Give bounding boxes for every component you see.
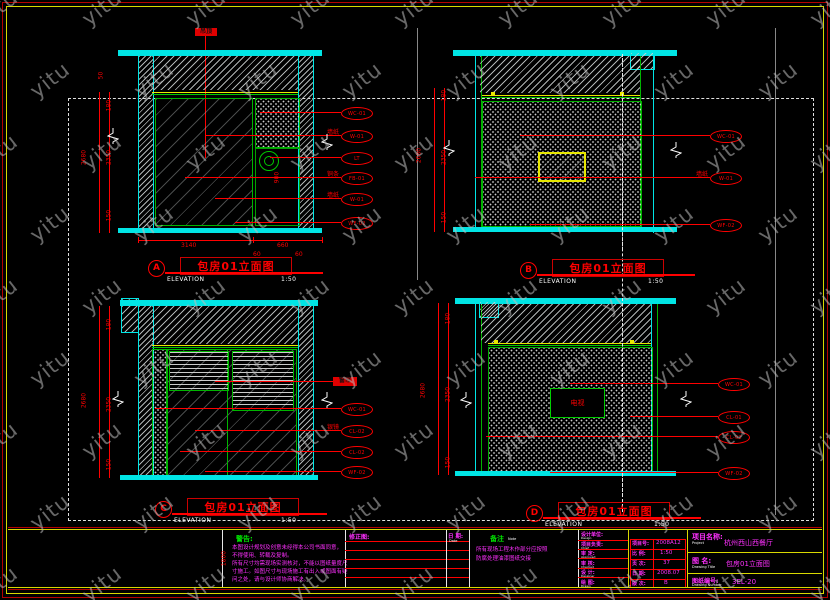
title-underline — [543, 517, 701, 519]
field-value: 1:50 — [660, 550, 672, 556]
callout-leader — [630, 416, 718, 417]
floor-line — [118, 228, 322, 233]
title-underline — [165, 272, 323, 274]
callout-label: 墙纸 — [295, 190, 339, 199]
dim-line — [138, 240, 322, 241]
dim-text: 150 — [106, 201, 113, 231]
callout-bubble: WC-01 — [341, 107, 373, 120]
elevation-panel-b: 180 2350 150 2680 WC-01 墙纸 W-01 WF-02 B … — [420, 28, 755, 283]
callout-bubble: WF-02 — [341, 217, 373, 230]
revision-header: 修正图: — [349, 532, 369, 541]
elevation-label: ELEVATION — [174, 517, 211, 524]
dim-text: 150 — [445, 448, 452, 478]
trim-line — [152, 345, 298, 346]
break-mark-icon — [670, 142, 682, 158]
date-subheader: Date — [449, 539, 457, 543]
view-letter: D — [526, 505, 543, 522]
grid-line — [775, 28, 776, 515]
scale-label: 1:50 — [648, 278, 663, 285]
signature-row-line — [578, 577, 628, 578]
callout-leader — [520, 135, 710, 136]
field-value: 2008.07 — [657, 570, 680, 576]
break-mark-icon — [680, 391, 692, 407]
callout-label: 墙纸 — [664, 169, 708, 178]
ceiling-tag: 吊顶 — [195, 28, 217, 36]
trim-bracket — [630, 340, 634, 344]
view-letter: C — [155, 501, 172, 518]
callout-bubble: LT — [341, 152, 373, 165]
callout-leader — [235, 222, 341, 223]
centerline-dashed — [622, 298, 623, 496]
wall-edge — [653, 50, 654, 233]
dim-tick — [138, 237, 139, 243]
drawing-title-sublabel: Drawing Title — [692, 565, 715, 569]
floor-line — [120, 475, 318, 480]
callout-bubble: CL-02 — [341, 425, 373, 438]
curtain-tag: 窗帘 — [333, 377, 357, 386]
callout-bubble: W-01 — [710, 172, 742, 185]
callout-label: 铜条 — [295, 169, 339, 178]
break-mark-icon — [443, 140, 455, 156]
elevation-label: ELEVATION — [539, 278, 576, 285]
project-sublabel: Project — [692, 541, 704, 545]
elevation-panel-d: 电视 180 2350 150 2680 WC-01 CL-01 CL-02 W… — [430, 285, 760, 540]
warning-text: 本图设计规划及创意未经得本公司书面同意， 不得使用、转载及复制。 所有尺寸均需现… — [232, 544, 350, 584]
callout-leader — [215, 381, 333, 382]
hatch-zone — [480, 56, 640, 93]
scale-label: 1:50 — [281, 517, 296, 524]
remark-text: 所有现场工程木作部分应按照 防腐处理油漆图纸交接 — [476, 546, 582, 564]
trim-line — [152, 92, 298, 93]
strip-border — [8, 587, 822, 588]
callout-bubble: WF-02 — [718, 467, 750, 480]
divider — [469, 530, 470, 587]
callout-bubble: CL-01 — [718, 411, 750, 424]
dim-text: 660 — [277, 242, 288, 249]
trim-bracket — [491, 92, 495, 96]
break-mark-icon — [321, 134, 333, 150]
dim-text: 60 — [295, 251, 303, 258]
divider — [687, 530, 688, 587]
title-underline — [537, 274, 695, 276]
dim-line — [434, 88, 435, 232]
strip-border — [8, 527, 822, 528]
dim-text: 2350 — [445, 380, 452, 410]
trim-line — [152, 347, 298, 348]
break-mark-icon — [321, 392, 333, 408]
callout-bubble: CL-02 — [718, 431, 750, 444]
signature-sublabel: Drawn — [581, 584, 591, 588]
dim-text: 3140 — [181, 242, 196, 249]
trim-line — [482, 97, 640, 98]
floor-line — [453, 227, 677, 232]
view-letter: A — [148, 260, 165, 277]
trim-line — [488, 343, 651, 344]
field-label: 版 次: — [632, 580, 646, 587]
field-label: 项目号: — [632, 540, 649, 547]
scale-label: 1:50 — [281, 276, 296, 283]
dim-text: 2680 — [81, 143, 88, 173]
dim-text: 180 — [445, 304, 452, 334]
divider — [687, 573, 822, 574]
project-name: 杭州西山西餐厅 — [724, 538, 773, 548]
drawing-title-value: 包房01立面图 — [726, 559, 770, 569]
callout-leader — [530, 224, 710, 225]
field-value: 37 — [663, 560, 670, 566]
dim-text: 2350 — [106, 143, 113, 173]
wall-column — [298, 56, 314, 228]
callout-bubble: CL-02 — [341, 446, 373, 459]
callout-leader — [550, 472, 718, 473]
divider — [628, 530, 629, 587]
callout-leader — [180, 451, 341, 452]
dim-tick — [253, 237, 254, 243]
divider — [446, 530, 447, 587]
callout-leader — [486, 436, 718, 437]
trim-bracket — [494, 340, 498, 344]
field-border — [685, 539, 686, 587]
field-value: B — [664, 580, 668, 586]
callout-leader — [570, 383, 718, 384]
callout-bubble: WF-02 — [341, 466, 373, 479]
drawing-number-value: 3EL-20 — [732, 578, 756, 586]
dim-line — [438, 303, 439, 475]
callout-leader — [260, 112, 341, 113]
break-mark-icon — [107, 128, 119, 144]
field-label: 比 例: — [632, 550, 646, 557]
field-label: 日 期: — [632, 570, 646, 577]
callout-bubble: WF-02 — [710, 219, 742, 232]
dim-text: 2680 — [416, 141, 423, 171]
tv-box: 电视 — [550, 388, 605, 418]
callout-bubble: FB-01 — [341, 172, 373, 185]
revision-row-line — [345, 577, 469, 578]
callout-bubble: W-01 — [341, 130, 373, 143]
field-value: 2008A12 — [656, 540, 681, 546]
revision-row-line — [345, 550, 469, 551]
hatch-zone — [152, 56, 298, 90]
title-underline — [172, 513, 327, 515]
dim-text: 50 — [98, 61, 105, 91]
break-mark-icon — [460, 392, 472, 408]
dim-text: 180 — [441, 81, 448, 111]
hatch-zone — [481, 304, 651, 343]
callout-bubble: WC-01 — [710, 130, 742, 143]
dim-text: 1800 — [221, 544, 228, 574]
callout-leader — [205, 471, 341, 472]
callout-leader — [155, 408, 341, 409]
drawing-number-sublabel: Drawing Number — [692, 583, 722, 587]
dim-tick — [322, 237, 323, 243]
divider — [687, 552, 822, 553]
callout-bubble: W-01 — [341, 193, 373, 206]
signature-row-line — [578, 558, 628, 559]
callout-leader — [270, 157, 341, 158]
revision-row-line — [345, 568, 469, 569]
dim-text: 150 — [106, 450, 113, 480]
dim-text: 180 — [106, 310, 113, 340]
dim-text: 2680 — [420, 376, 427, 406]
title-bar: 1800 警告: 本图设计规划及创意未经得本公司书面同意， 不得使用、转载及复制… — [8, 527, 822, 590]
dim-text: 2680 — [81, 386, 88, 416]
remark-title: 备注 — [490, 534, 504, 544]
strip-border — [8, 529, 822, 530]
hatch-zone — [152, 306, 298, 344]
remark-subtitle: Note — [508, 537, 516, 541]
dim-line — [99, 92, 100, 233]
break-mark-icon — [112, 391, 124, 407]
callout-bubble: WC-01 — [718, 378, 750, 391]
wallpaper-zone — [255, 98, 300, 148]
view-letter: B — [520, 262, 537, 279]
warning-title: 警告: — [236, 534, 253, 544]
callout-label: 银镜 — [295, 422, 339, 431]
strip-border — [8, 589, 822, 590]
callout-bubble: WC-01 — [341, 403, 373, 416]
blinds-left — [169, 351, 229, 391]
trim-line — [482, 95, 640, 96]
elevation-panel-c: 180 2350 150 2680 窗帘 WC-01 银镜 CL-02 CL-0… — [85, 285, 385, 540]
wallpaper-strip — [152, 349, 167, 477]
trim-line — [152, 94, 298, 95]
glass-panel — [155, 98, 253, 226]
dim-text: 150 — [441, 203, 448, 233]
dim-line — [99, 306, 100, 478]
field-label: 页 次: — [632, 560, 646, 567]
elevation-label: ELEVATION — [167, 276, 204, 283]
trim-line — [488, 345, 651, 346]
centerline-dashed — [622, 54, 623, 250]
dim-text: 180 — [106, 91, 113, 121]
elevation-panel-a: 吊顶 50 180 2350 150 2680 900 3140 660 60 … — [85, 28, 385, 283]
drawing-sheet: 吊顶 50 180 2350 150 2680 900 3140 660 60 … — [0, 0, 830, 600]
revision-row-line — [345, 559, 469, 560]
